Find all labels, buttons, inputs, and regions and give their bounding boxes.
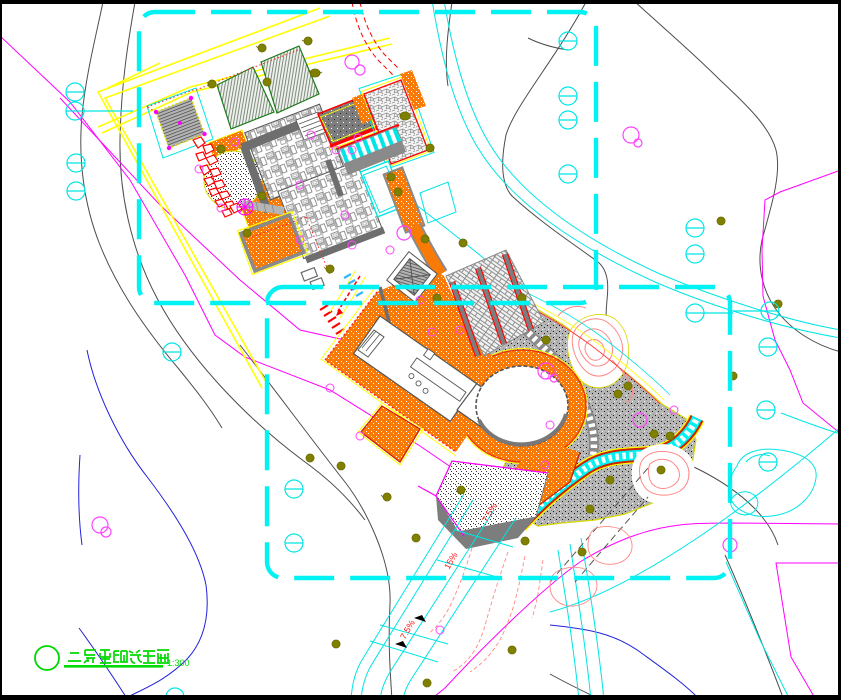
svg-text:1:300: 1:300	[167, 658, 190, 668]
